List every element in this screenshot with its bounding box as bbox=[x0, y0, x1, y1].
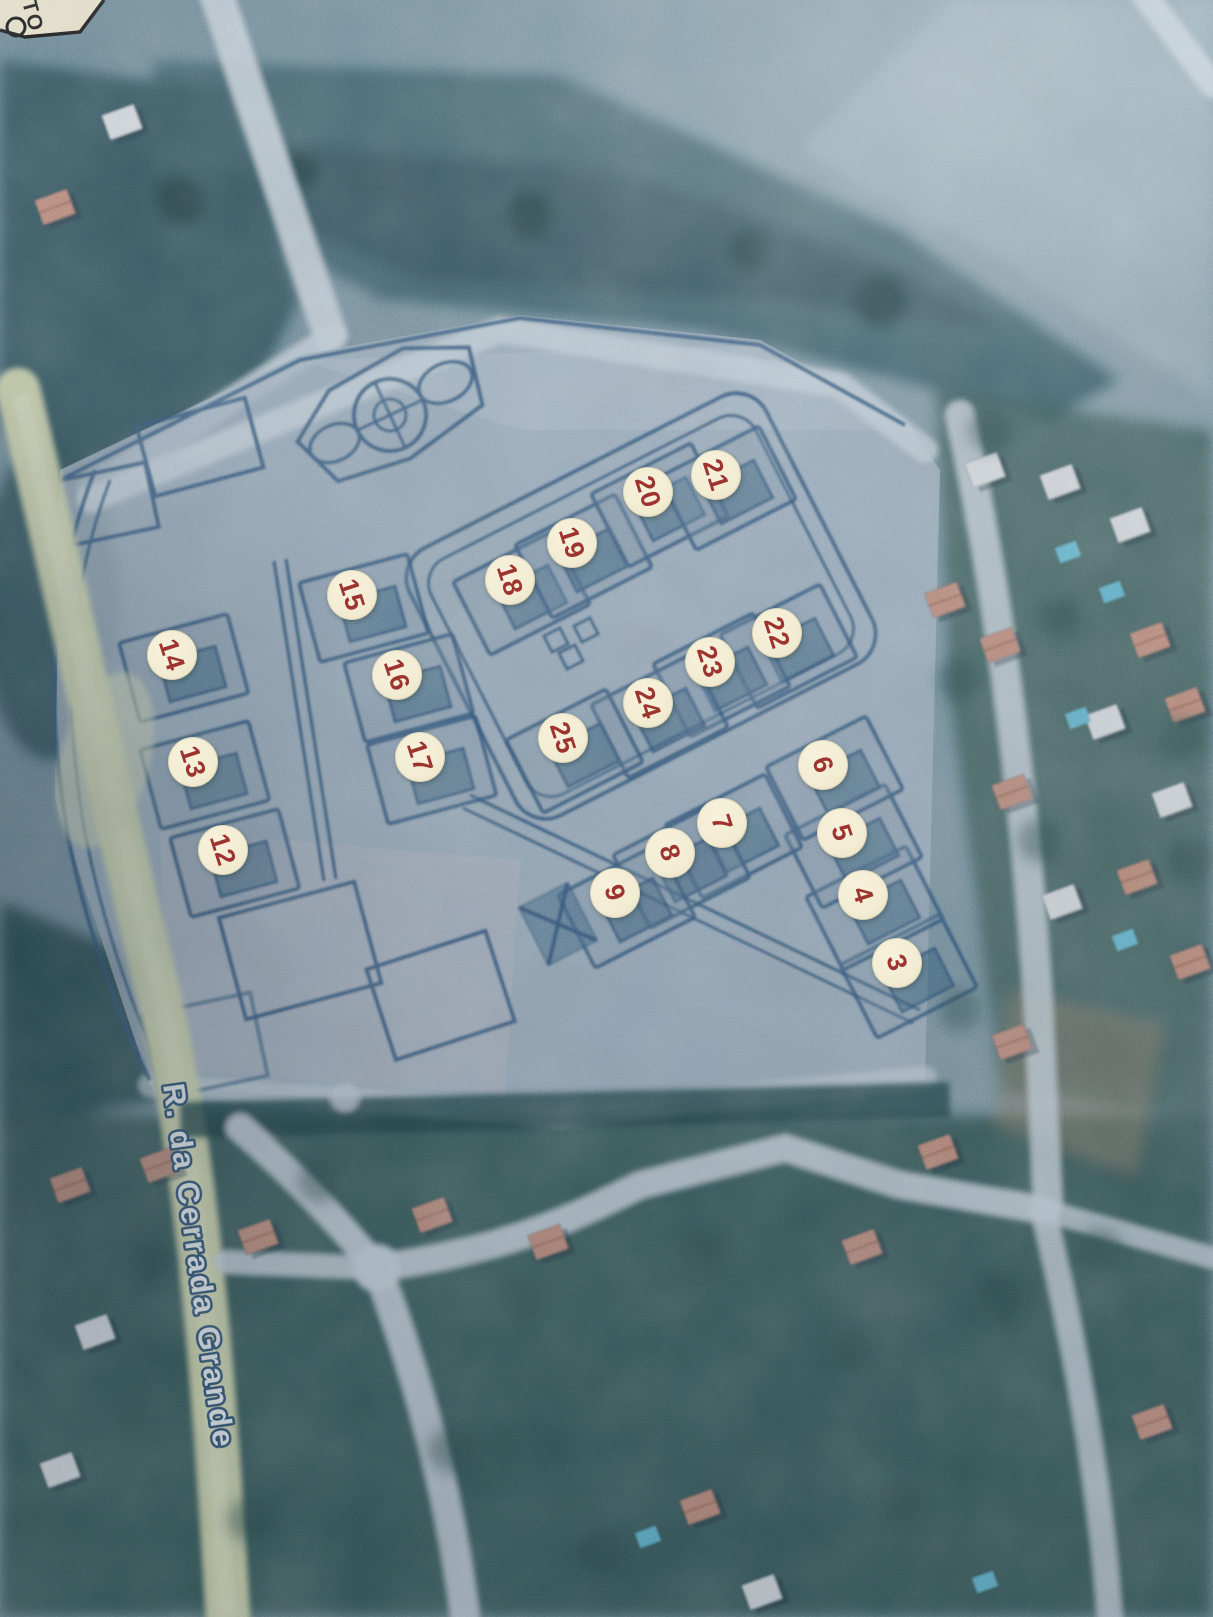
map-scene: R. da Cerrada Grande TO bbox=[0, 0, 1213, 1617]
aerial-map-photo: R. da Cerrada Grande TO 3456789121314151… bbox=[0, 0, 1213, 1617]
print-blotch-overlay bbox=[0, 0, 1213, 1617]
